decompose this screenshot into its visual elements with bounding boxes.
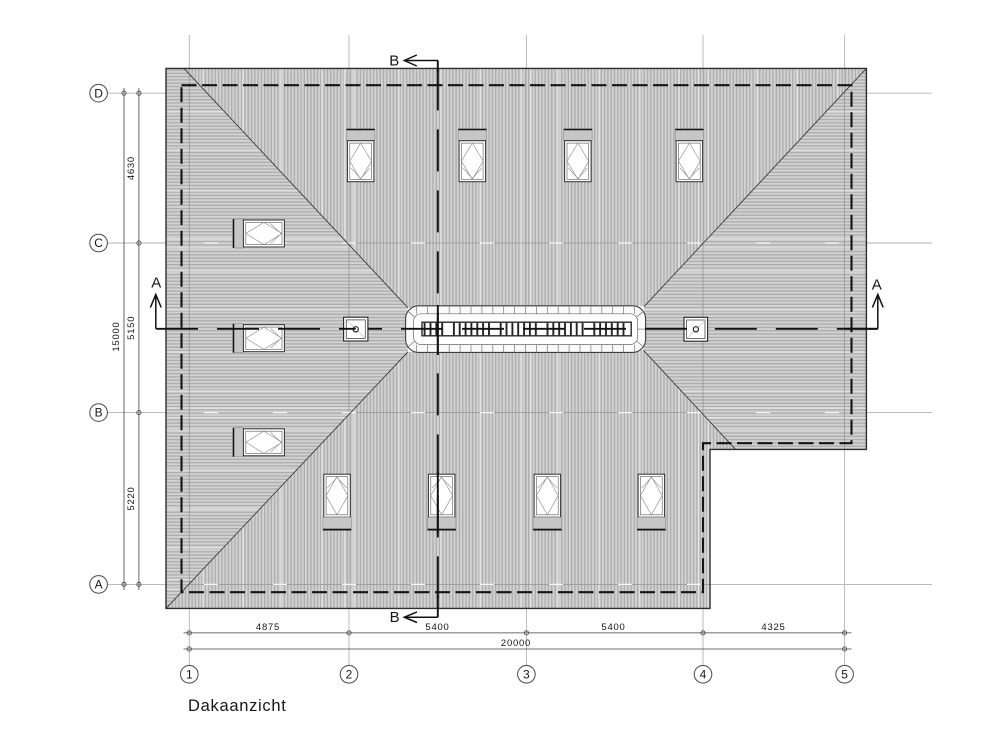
- svg-text:Dakaanzicht: Dakaanzicht: [188, 697, 287, 715]
- svg-text:B: B: [389, 53, 399, 70]
- svg-text:A: A: [872, 277, 882, 294]
- svg-text:C: C: [94, 236, 103, 250]
- svg-text:D: D: [94, 86, 103, 100]
- svg-text:4: 4: [700, 667, 707, 681]
- svg-text:5400: 5400: [425, 622, 449, 633]
- svg-text:B: B: [95, 406, 103, 420]
- svg-text:2: 2: [346, 667, 353, 681]
- svg-text:1: 1: [186, 667, 193, 681]
- svg-text:5150: 5150: [126, 316, 137, 340]
- svg-text:20000: 20000: [501, 638, 531, 649]
- svg-text:4325: 4325: [761, 622, 785, 633]
- svg-text:5400: 5400: [601, 622, 625, 633]
- svg-text:5: 5: [841, 667, 848, 681]
- svg-text:A: A: [95, 578, 103, 592]
- svg-text:15000: 15000: [111, 321, 122, 351]
- svg-text:4630: 4630: [126, 156, 137, 180]
- svg-text:5220: 5220: [126, 486, 137, 510]
- svg-text:A: A: [151, 274, 161, 291]
- svg-text:4875: 4875: [256, 622, 280, 633]
- svg-text:B: B: [390, 609, 400, 626]
- svg-text:3: 3: [523, 667, 530, 681]
